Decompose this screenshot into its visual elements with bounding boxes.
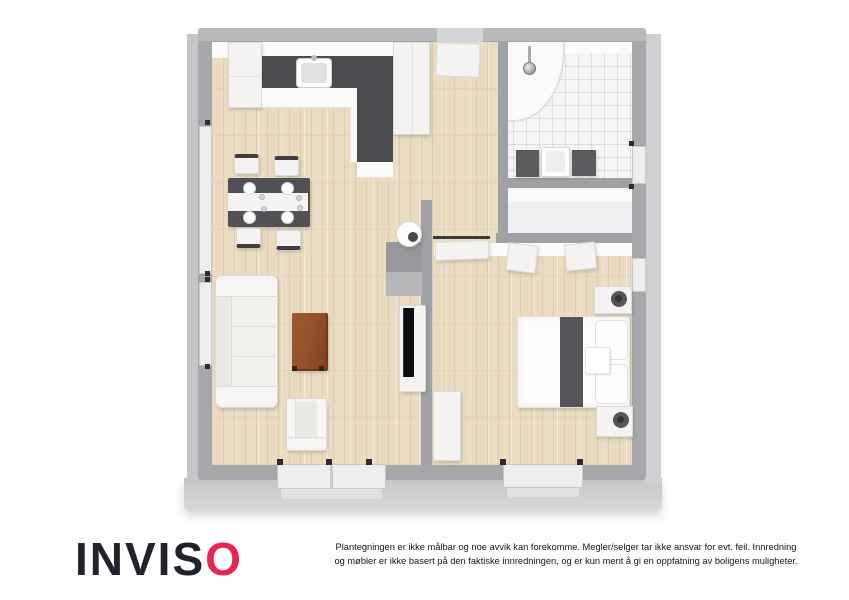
cabinet-seam: [229, 76, 261, 77]
dining-chair: [276, 230, 301, 250]
right-wall-window-bathroom: [632, 146, 646, 184]
floor-plan: [0, 0, 849, 600]
closet-sliding-panel: [505, 242, 538, 273]
vanity-cabinet-right: [572, 150, 596, 176]
outer-wall-bottom-face: [184, 478, 662, 511]
closet-sliding-panel: [564, 241, 598, 271]
bedroom-top-wall: [496, 233, 632, 243]
table-leg: [319, 366, 324, 371]
sink-basin: [546, 151, 565, 172]
round-lamp: [396, 221, 422, 247]
window-jamb: [205, 277, 210, 282]
shower-head: [523, 62, 536, 75]
tv-flat-panel: [403, 308, 414, 377]
sideboard-front: [386, 272, 422, 296]
bathroom-left-wall: [498, 42, 508, 243]
disclaimer-line-1: Plantegningen er ikke målbar og noe avvi…: [299, 541, 833, 555]
disclaimer-text: Plantegningen er ikke målbar og noe avvi…: [299, 541, 833, 568]
window-jamb: [205, 271, 210, 276]
armchair: [286, 398, 327, 451]
vanity-cabinet-left: [516, 150, 539, 177]
kitchen-peninsula-top: [357, 88, 393, 162]
window-divider: [330, 465, 333, 488]
window-jamb: [205, 364, 210, 369]
right-wall-window-small: [632, 258, 646, 292]
bed-runner: [560, 317, 583, 407]
sofa-armrest: [216, 386, 277, 407]
disclaimer-line-2: og møbler er ikke basert på den faktiske…: [299, 555, 833, 569]
left-wall-window-long: [199, 126, 212, 274]
window-jamb: [629, 141, 634, 146]
place-setting-plate: [243, 182, 256, 195]
tall-cabinet-column: [393, 42, 430, 135]
window-jamb: [326, 459, 332, 465]
place-setting-plate: [281, 211, 294, 224]
living-window-sill: [281, 488, 382, 499]
glass: [297, 205, 303, 211]
outer-wall-right-face: [645, 34, 661, 484]
coffee-table: [292, 313, 328, 371]
cabinet-seam: [412, 43, 413, 134]
closet-north-wall-face: [508, 189, 632, 201]
lamp-center: [615, 295, 622, 302]
left-wall-window-living: [199, 282, 212, 366]
sofa-back: [216, 296, 232, 386]
armchair-back: [288, 437, 325, 450]
dining-chair: [274, 156, 299, 176]
logo-text-accent-o: O: [205, 533, 243, 585]
window-jamb: [366, 459, 372, 465]
place-setting-plate: [243, 211, 256, 224]
faucet: [311, 55, 317, 61]
glass: [261, 206, 267, 212]
bottom-wall-window-bedroom: [503, 464, 583, 488]
fridge-cabinet: [228, 42, 262, 108]
place-setting-plate: [281, 182, 294, 195]
bedroom-window-sill: [507, 487, 579, 497]
sink-basin: [301, 63, 327, 83]
double-bed: [517, 316, 630, 408]
glass: [259, 194, 265, 200]
dining-chair: [236, 228, 261, 248]
logo-text-main: INVIS: [75, 533, 205, 585]
armchair-seat: [296, 401, 317, 437]
bottom-wall-window-living: [277, 464, 386, 489]
bedroom-sliding-door: [435, 240, 490, 261]
front-door-leaf: [435, 42, 480, 78]
bedroom-door-track: [433, 236, 490, 239]
sofa-cushion: [233, 328, 276, 357]
nightstand-lamp: [613, 412, 629, 428]
dining-chair: [234, 154, 259, 174]
sofa-cushion: [233, 298, 276, 327]
kitchen-peninsula-front: [357, 162, 393, 178]
kitchen-sink: [296, 58, 332, 88]
front-door-opening: [437, 28, 483, 42]
nightstand-lamp: [611, 291, 627, 307]
vanity-sink: [541, 147, 570, 177]
window-jamb: [577, 459, 583, 465]
glass: [296, 195, 302, 201]
lamp-center: [617, 416, 624, 423]
sofa-armrest: [216, 276, 277, 297]
sideboard: [386, 242, 422, 272]
inviso-logo: INVISO: [75, 536, 243, 582]
table-leg: [292, 366, 297, 371]
bathroom-bottom-wall: [498, 178, 632, 188]
lamp-center: [408, 232, 418, 242]
kitchen-counter-front: [262, 88, 357, 108]
sofa-cushion: [233, 358, 276, 385]
outer-wall-top-face: [198, 28, 646, 41]
window-jamb: [500, 459, 506, 465]
dining-table: [228, 178, 310, 227]
wardrobe: [433, 391, 461, 461]
window-jamb: [277, 459, 283, 465]
window-jamb: [205, 120, 210, 125]
bed-tray: [585, 347, 610, 374]
window-jamb: [629, 184, 634, 189]
sofa: [215, 275, 278, 408]
